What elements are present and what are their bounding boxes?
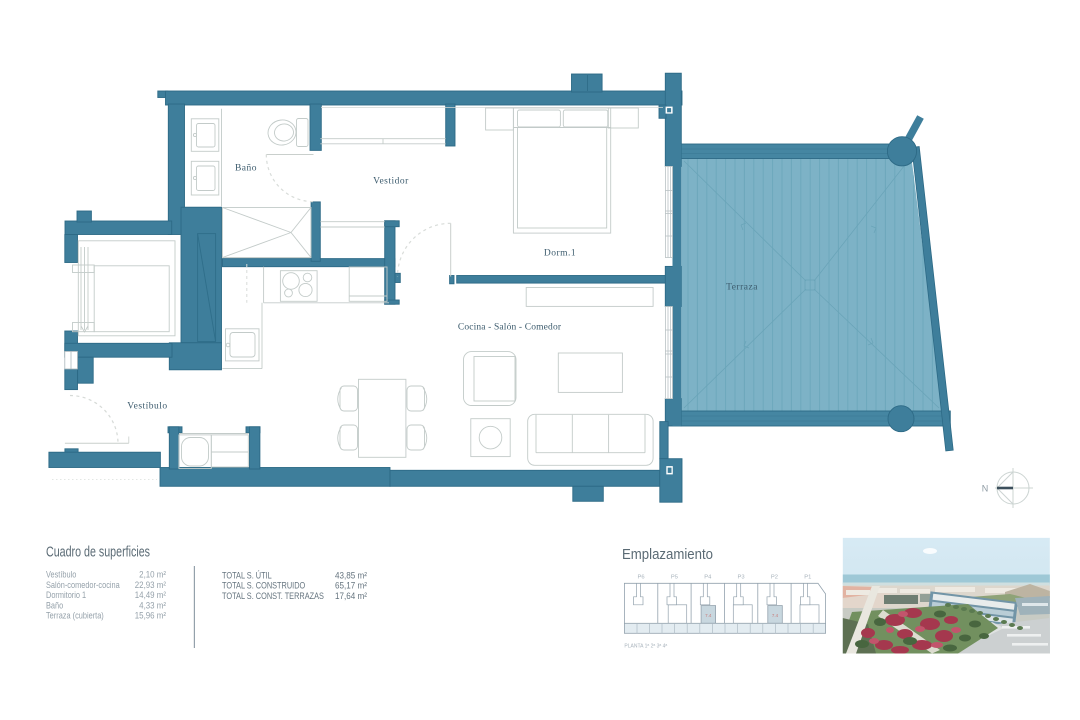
svg-text:17,64 m²: 17,64 m² xyxy=(335,590,367,601)
svg-text:Cocina - Salón - Comedor: Cocina - Salón - Comedor xyxy=(458,323,562,333)
svg-text:4,33 m²: 4,33 m² xyxy=(139,600,166,611)
svg-text:22,93 m²: 22,93 m² xyxy=(135,579,166,590)
svg-text:Dormitorio 1: Dormitorio 1 xyxy=(46,590,87,600)
svg-text:Vestíbulo: Vestíbulo xyxy=(46,570,77,580)
svg-text:Salón-comedor-cocina: Salón-comedor-cocina xyxy=(46,580,120,590)
svg-text:P5: P5 xyxy=(671,575,678,581)
svg-text:7.4: 7.4 xyxy=(772,613,779,618)
svg-text:15,96 m²: 15,96 m² xyxy=(135,610,166,621)
svg-text:Baño: Baño xyxy=(46,601,64,611)
svg-text:Terraza: Terraza xyxy=(726,283,758,293)
svg-text:P1: P1 xyxy=(804,575,811,581)
svg-text:N: N xyxy=(982,484,989,494)
svg-text:P2: P2 xyxy=(771,575,778,581)
svg-text:Baño: Baño xyxy=(235,164,257,174)
svg-text:Cuadro de superficies: Cuadro de superficies xyxy=(46,544,150,561)
svg-text:Emplazamiento: Emplazamiento xyxy=(622,546,713,563)
svg-text:14,49 m²: 14,49 m² xyxy=(135,590,166,601)
svg-text:Terraza (cubierta): Terraza (cubierta) xyxy=(46,611,104,621)
svg-text:Dorm.1: Dorm.1 xyxy=(544,249,576,259)
svg-text:P6: P6 xyxy=(637,575,644,581)
svg-text:TOTAL S. CONST. TERRAZAS: TOTAL S. CONST. TERRAZAS xyxy=(222,590,324,601)
svg-text:2,10 m²: 2,10 m² xyxy=(139,569,166,580)
svg-text:P4: P4 xyxy=(704,575,712,581)
svg-text:P3: P3 xyxy=(738,575,745,581)
svg-text:43,85 m²: 43,85 m² xyxy=(335,570,367,581)
svg-text:Vestidor: Vestidor xyxy=(373,177,409,187)
svg-text:65,17 m²: 65,17 m² xyxy=(335,580,367,591)
svg-text:7.4: 7.4 xyxy=(705,613,712,618)
svg-text:PLANTA 1ª 2ª 3ª 4ª: PLANTA 1ª 2ª 3ª 4ª xyxy=(624,644,667,650)
svg-text:Vestíbulo: Vestíbulo xyxy=(127,402,167,412)
